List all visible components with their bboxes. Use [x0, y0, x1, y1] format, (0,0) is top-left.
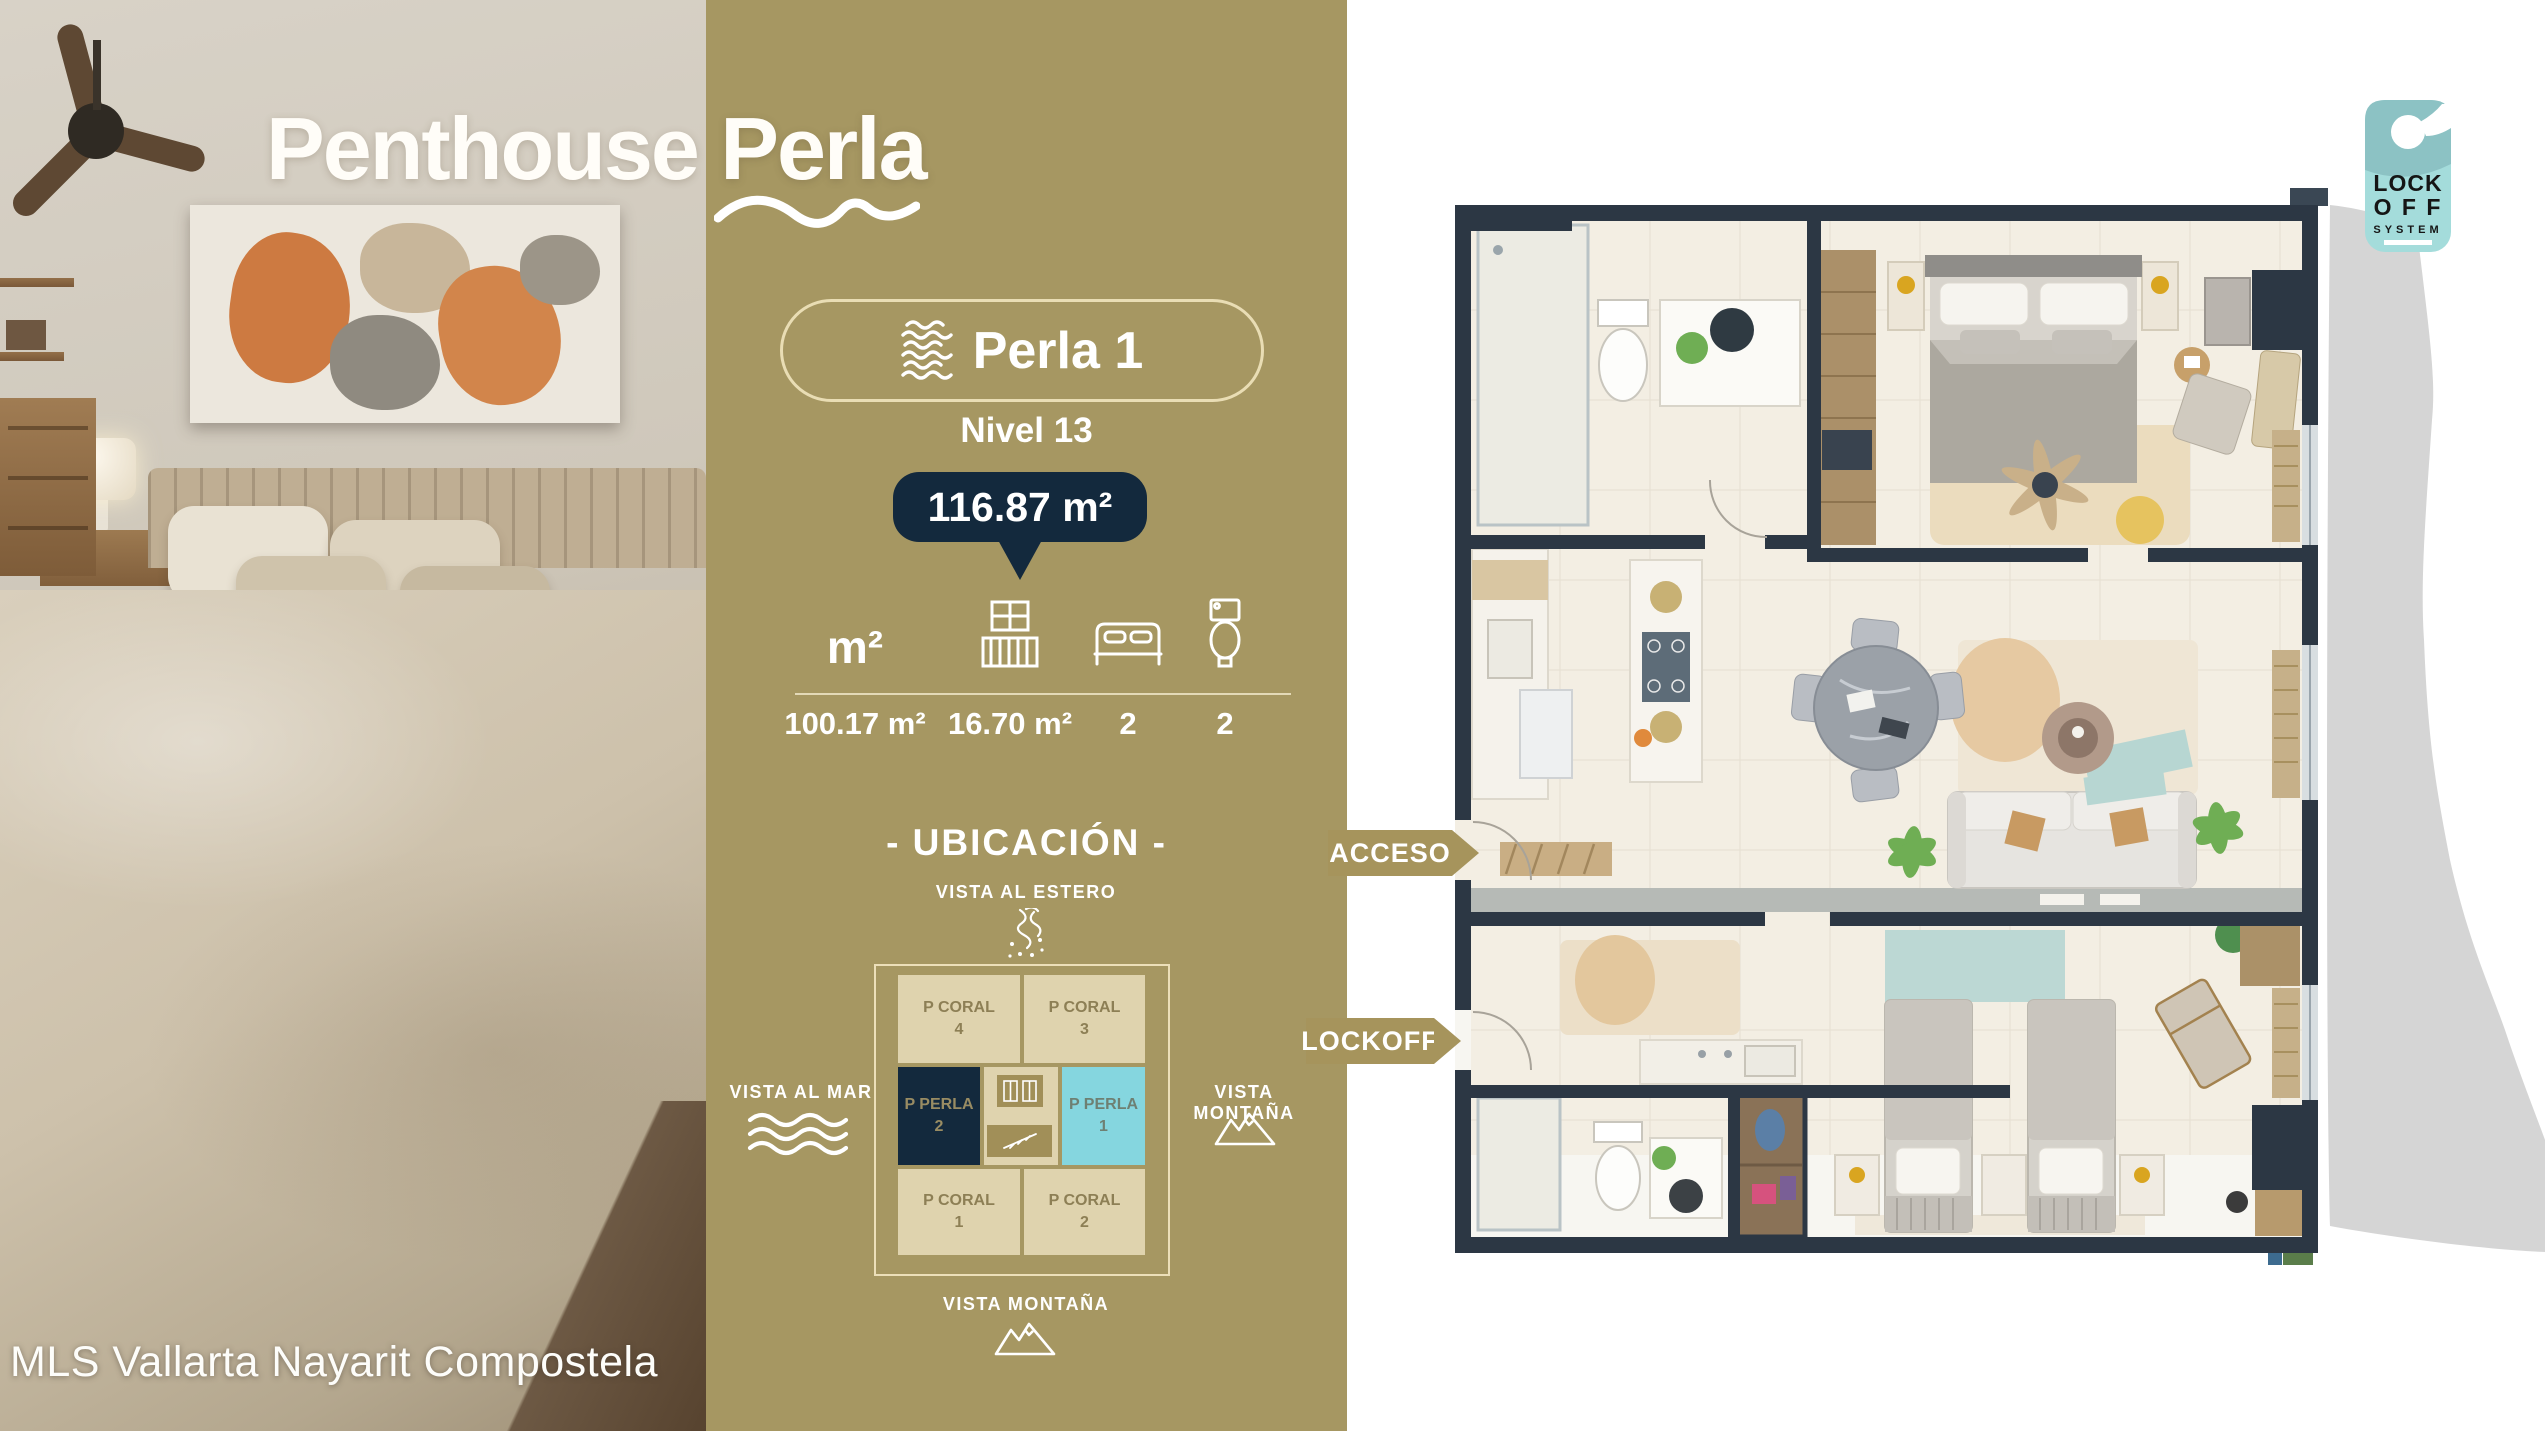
lockoff-closet	[1735, 1092, 1805, 1237]
twin-bed	[1885, 1000, 1972, 1232]
nightstand	[2120, 1155, 2164, 1215]
elevators-icon	[997, 1075, 1043, 1107]
cell-p-coral-3[interactable]: P CORAL3	[1024, 975, 1145, 1063]
fan-rod	[93, 40, 101, 110]
louver-bench	[2272, 430, 2300, 1098]
tv	[1822, 430, 1872, 470]
lockoff-badge-line2: O F F	[2374, 194, 2443, 220]
lockoff-tag: LOCKOFF	[1306, 1018, 1434, 1064]
view-estero-label: VISTA AL ESTERO	[876, 882, 1176, 903]
shower-1	[1478, 225, 1588, 525]
ubicacion-heading: - UBICACIÓN -	[706, 822, 1347, 864]
lamp	[2134, 1167, 2150, 1183]
unit-badge-label: Perla 1	[973, 321, 1144, 381]
mountain-icon	[994, 1320, 1056, 1358]
cell-p-coral-1[interactable]: P CORAL1	[898, 1169, 1020, 1255]
fridge	[1520, 690, 1572, 778]
vanity-mirror	[1710, 308, 1754, 352]
acceso-tag: ACCESO	[1328, 830, 1452, 876]
fan-hub	[68, 103, 124, 159]
lamp	[1849, 1167, 1865, 1183]
page-title: Penthouse Perla	[266, 98, 1166, 200]
lockoff-tag-label: LOCKOFF	[1301, 1026, 1438, 1057]
pillow	[1940, 283, 2028, 325]
water-lines-icon	[901, 320, 953, 382]
sofa-pillow	[2109, 807, 2148, 846]
plate	[1650, 711, 1682, 743]
cell-p-perla-2[interactable]: P PERLA2	[898, 1067, 980, 1165]
title-wave-icon	[714, 190, 920, 230]
waves-icon	[746, 1112, 856, 1158]
lockoff-wardrobe	[2240, 924, 2300, 986]
acceso-tag-label: ACCESO	[1329, 838, 1451, 869]
lockoff-badge-line3: SYSTEM	[2373, 224, 2442, 236]
bed-headboard	[1925, 255, 2142, 277]
wood-bench	[2255, 1190, 2302, 1236]
window	[2302, 425, 2318, 1100]
watermark: MLS Vallarta Nayarit Compostela	[10, 1338, 690, 1387]
nightstand	[1888, 262, 1924, 330]
toilet-2	[1596, 1146, 1640, 1210]
plant	[1676, 332, 1708, 364]
plate	[1650, 581, 1682, 613]
lamp	[2151, 276, 2169, 294]
cell-p-coral-4[interactable]: P CORAL4	[898, 975, 1020, 1063]
stairs-icon	[987, 1125, 1052, 1157]
plant	[1652, 1146, 1676, 1170]
lamp	[1897, 276, 1915, 294]
view-montana-bottom-label: VISTA MONTAÑA	[940, 1294, 1112, 1315]
toilet-1	[1599, 329, 1647, 401]
nightstand	[2142, 262, 2178, 330]
cell-p-perla-1[interactable]: P PERLA1	[1062, 1067, 1145, 1165]
stat-bathrooms: 2	[1140, 706, 1310, 742]
toilet-icon	[1145, 592, 1305, 670]
location-diagram: P CORAL4 P CORAL3 P PERLA2 P PERLA1 P CO…	[898, 975, 1145, 1255]
stats-divider	[795, 693, 1291, 695]
lockoff-rug-teal	[1885, 930, 2065, 1002]
level-label: Nivel 13	[706, 411, 1347, 451]
total-area-badge: 116.87 m²	[893, 472, 1147, 542]
lockoff-system-badge: LOCK O F F SYSTEM	[2362, 96, 2454, 256]
stat-area-total: 100.17 m²	[770, 706, 940, 742]
kitchen-sink	[1488, 620, 1532, 678]
unit-badge: Perla 1	[780, 299, 1264, 402]
nightstand	[1835, 1155, 1879, 1215]
pillow	[2040, 283, 2128, 325]
area-unit-icon: m²	[775, 592, 935, 670]
cell-p-coral-2[interactable]: P CORAL2	[1024, 1169, 1145, 1255]
estuary-icon	[996, 908, 1056, 962]
shower-2	[1478, 1098, 1560, 1230]
badge-pointer	[998, 540, 1042, 580]
total-area-value: 116.87 m²	[928, 484, 1113, 531]
wall-shelf	[0, 278, 74, 287]
fruit-bowl	[1634, 729, 1652, 747]
terrace-floor	[1471, 888, 2302, 912]
floorplan	[1440, 180, 2350, 1265]
planter-pot	[2226, 1191, 2248, 1213]
lockoff-badge-line1: LOCK	[2373, 170, 2442, 196]
sink-bowl	[1669, 1179, 1703, 1213]
wall-shelf	[0, 352, 64, 361]
shelf-books	[6, 320, 46, 350]
bedroom-closet	[1818, 250, 1876, 545]
dresser	[2205, 278, 2250, 345]
view-mar-label: VISTA AL MAR	[726, 1082, 876, 1103]
mountain-icon	[1214, 1110, 1276, 1148]
nightstand	[1982, 1155, 2026, 1215]
entry-bench	[1500, 842, 1612, 876]
bedroom-photo: MLS Vallarta Nayarit Compostela	[0, 0, 706, 1431]
page: MLS Vallarta Nayarit Compostela Perla 1 …	[0, 0, 2545, 1431]
dresser	[0, 398, 96, 576]
wall-art	[190, 205, 620, 423]
twin-bed	[2028, 1000, 2115, 1232]
